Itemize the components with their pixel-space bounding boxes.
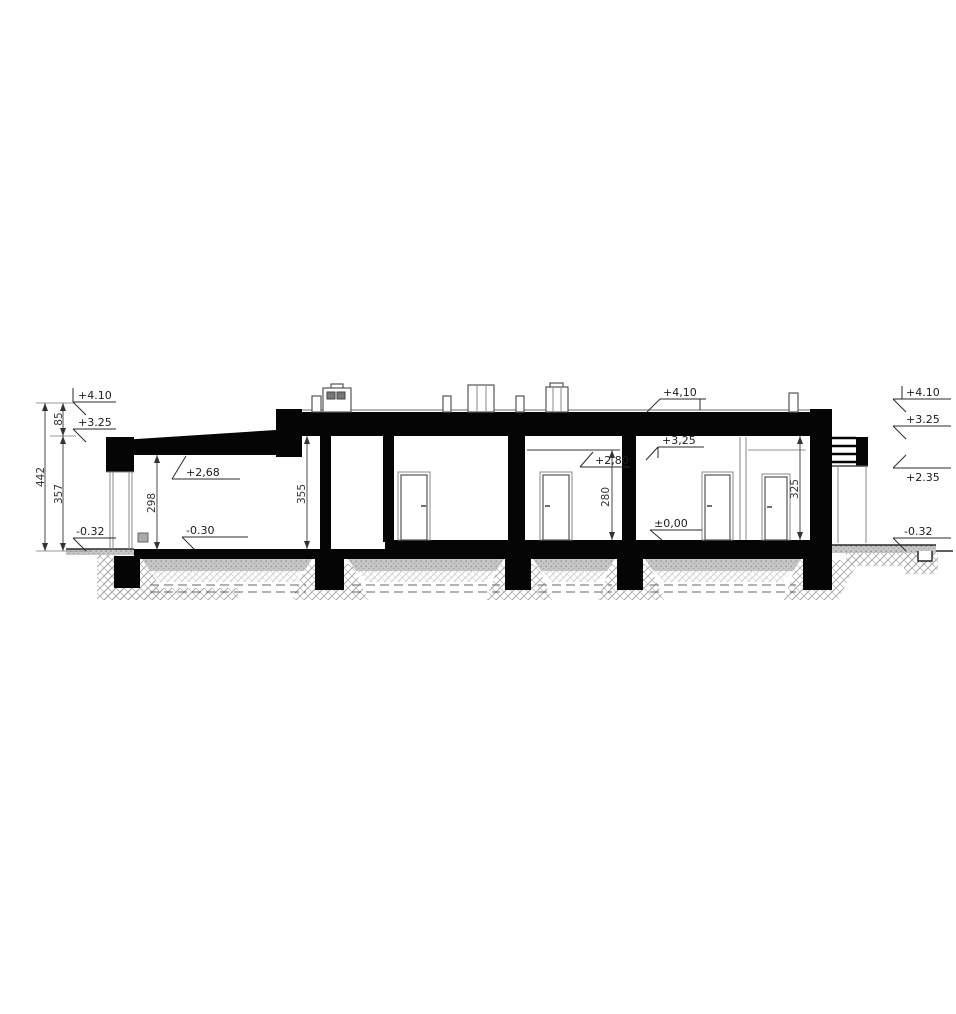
level-room4-ceiling: +2,80 [595, 454, 629, 467]
footing-right-wall [803, 554, 832, 590]
footing-wall-4 [505, 556, 531, 590]
door-room4 [540, 472, 572, 540]
bedding-band-1 [142, 559, 312, 571]
level-roof-410: +4,10 [663, 386, 697, 399]
level-room5-floor: ±0,00 [654, 517, 688, 530]
fittings [106, 383, 868, 549]
floor-slab [134, 540, 832, 559]
level-left-325: +3.25 [78, 416, 112, 429]
roof-vent-pipe-1 [312, 396, 321, 412]
footing-left-wall [114, 556, 140, 588]
bedding-band-4 [645, 559, 801, 571]
subsoil-band-4 [655, 571, 791, 582]
dashed-subbase-2 [352, 585, 500, 592]
dim-room4-height: 280 [600, 487, 612, 507]
roof-vent-pipe-4 [789, 393, 798, 412]
garage-annotations: 298 +2,68 -0.30 [146, 455, 248, 550]
level-left-032: -0.32 [76, 525, 104, 538]
paving-left [66, 549, 134, 555]
dashed-subbase-3 [538, 585, 612, 592]
right-exterior-wall [810, 409, 832, 558]
footing-wall-2 [315, 556, 344, 590]
section-drawing: 442 85 357 +4.10 +3.25 -0.32 [0, 0, 956, 1014]
level-garage-floor: -0.30 [186, 524, 214, 537]
wall-socket-box [138, 533, 148, 542]
wall-3 [383, 436, 394, 542]
wall-2 [320, 436, 331, 549]
roof-vent-pipe-3 [516, 396, 524, 412]
bedding-band-3 [533, 559, 615, 571]
level-marker-roof: +4,10 [647, 386, 706, 412]
door-room5b [762, 474, 790, 540]
terrace-pergola [832, 437, 868, 543]
garage-parapet [106, 437, 134, 472]
drain-channel [918, 551, 932, 561]
main-roof-slab [276, 412, 810, 436]
footing-wall-5 [617, 556, 643, 590]
door-room5a [702, 472, 733, 540]
level-right-032: -0.32 [904, 525, 932, 538]
dim-room5-height: 325 [789, 479, 801, 499]
door-room3 [398, 472, 430, 540]
dim-wall-height: 357 [53, 484, 65, 504]
dim-parapet-height: 85 [53, 412, 65, 425]
section-drawing-canvas: 442 85 357 +4.10 +3.25 -0.32 [0, 0, 956, 1014]
level-left-410: +4.10 [78, 389, 112, 402]
subsoil-band-3 [543, 571, 605, 582]
subsoil-band-1 [152, 571, 302, 582]
main-parapet-step [276, 409, 302, 457]
level-room5-ceiling: +3,25 [662, 434, 696, 447]
dim-shaft-height: 355 [296, 484, 308, 504]
roof-chimney-2 [546, 383, 568, 412]
dim-garage-height: 298 [146, 493, 158, 513]
roof-ventilation-unit [323, 384, 351, 412]
bedding-band-2 [348, 559, 504, 571]
garage-window [106, 472, 134, 549]
level-garage-ceiling: +2,68 [186, 466, 220, 479]
wall-5 [622, 436, 636, 542]
dim-total-height: 442 [35, 467, 47, 487]
dashed-subbase-4 [650, 585, 796, 592]
rooftop-equipment [312, 383, 798, 412]
roof-chimney-1 [468, 385, 494, 412]
wall-4 [508, 436, 525, 542]
subsoil-band-2 [358, 571, 494, 582]
level-right-410: +4.10 [906, 386, 940, 399]
roof-vent-pipe-2 [443, 396, 451, 412]
level-right-235: +2.35 [906, 471, 940, 484]
pergola-post [856, 437, 868, 466]
level-markers-right: +4.10 +3.25 +2.35 -0.32 [893, 386, 951, 551]
level-right-325: +3.25 [906, 413, 940, 426]
